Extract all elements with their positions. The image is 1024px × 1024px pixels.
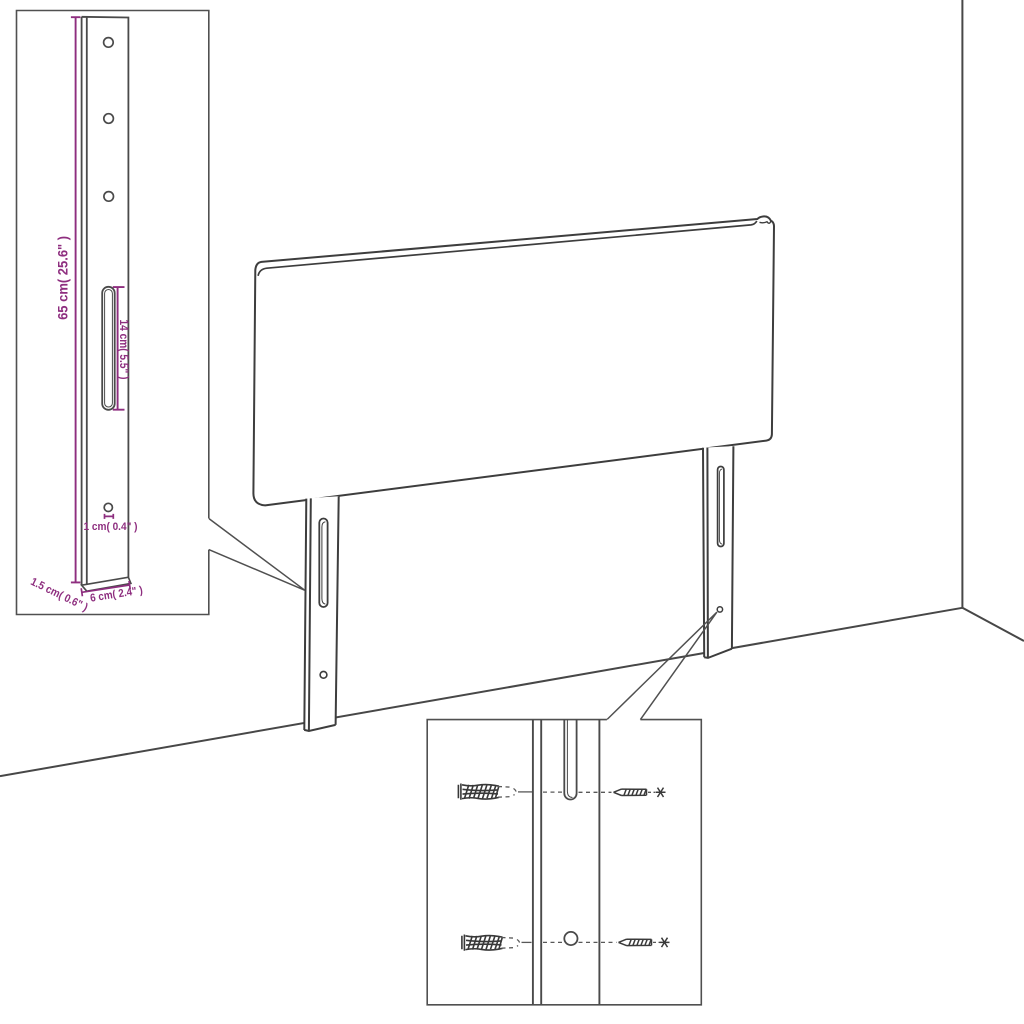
svg-text:1 cm( 0.4" ): 1 cm( 0.4" ) xyxy=(84,521,138,533)
svg-text:65 cm( 25.6" ): 65 cm( 25.6" ) xyxy=(55,236,70,320)
svg-text:14 cm( 5.5" ): 14 cm( 5.5" ) xyxy=(117,320,131,380)
